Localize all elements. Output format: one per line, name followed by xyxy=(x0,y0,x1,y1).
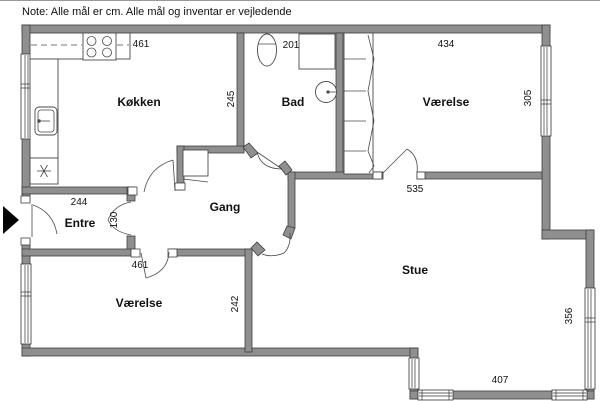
refrigerator-icon xyxy=(30,158,58,184)
shower-icon xyxy=(299,34,335,69)
dim-bedroom2-right: 242 xyxy=(230,295,241,312)
dim-kitchen-right: 245 xyxy=(226,90,237,107)
window-bedroom2 xyxy=(21,264,31,344)
room-label-living: Stue xyxy=(402,263,428,277)
dim-bath-top: 201 xyxy=(283,40,300,51)
door-jamb xyxy=(128,187,137,195)
room-label-entry: Entre xyxy=(65,216,96,230)
door-jamb xyxy=(131,249,140,257)
door-jamb xyxy=(21,196,30,203)
window-living-right xyxy=(585,288,595,389)
dim-bedroom2-top: 461 xyxy=(132,260,149,271)
interior-walls xyxy=(22,33,542,352)
room-labels: Køkken Bad Værelse Gang Entre Stue Værel… xyxy=(65,95,470,310)
room-label-bath: Bad xyxy=(282,95,305,109)
toilet-icon xyxy=(258,34,277,66)
door-jamb xyxy=(21,238,30,245)
outer-walls xyxy=(22,25,594,399)
wall-segment xyxy=(237,33,244,152)
door-jamb xyxy=(417,172,425,179)
wall-segment xyxy=(251,242,265,256)
bath-door xyxy=(257,152,282,169)
door-jamb xyxy=(373,172,382,179)
window-kitchen xyxy=(21,54,31,139)
wardrobe-icon xyxy=(344,33,374,174)
bedroom1-door xyxy=(383,149,417,173)
window-living-step xyxy=(409,358,419,389)
fixtures xyxy=(30,33,374,184)
room-label-bedroom2: Værelse xyxy=(116,296,163,310)
wall-segment xyxy=(288,172,295,228)
window-living-bottom-2 xyxy=(552,390,587,400)
entrance-arrow-icon xyxy=(3,206,19,234)
dim-living-bottom: 407 xyxy=(492,375,509,386)
washbasin-icon xyxy=(316,82,337,103)
wall-segment xyxy=(169,249,252,256)
kitchen-sink-icon xyxy=(35,107,57,135)
wall-segment xyxy=(22,249,131,256)
dim-entry-top: 244 xyxy=(71,197,88,208)
window-bedroom1 xyxy=(541,46,551,136)
wall-segment xyxy=(22,187,134,194)
dim-living-top: 535 xyxy=(407,184,424,195)
wall-segment xyxy=(417,172,542,179)
door-jamb xyxy=(175,183,185,190)
dim-bedroom1-top: 434 xyxy=(438,39,455,50)
wall-segment xyxy=(283,226,295,239)
floor-plan-drawing: Note: Alle mål er cm. Alle mål og invent… xyxy=(0,1,600,401)
dim-kitchen-top: 461 xyxy=(133,39,150,50)
wall-segment xyxy=(22,25,550,33)
room-label-kitchen: Køkken xyxy=(117,95,160,109)
dim-bedroom1-right: 305 xyxy=(523,89,534,106)
wall-segment xyxy=(243,143,258,158)
dim-entry-opening: 130 xyxy=(109,211,120,228)
wall-segment xyxy=(245,249,252,352)
room-label-hall: Gang xyxy=(210,200,241,214)
plan-note: Note: Alle mål er cm. Alle mål og invent… xyxy=(22,6,292,18)
stove-icon xyxy=(83,33,116,60)
wall-segment xyxy=(336,33,343,174)
floor-plan: Note: Alle mål er cm. Alle mål og invent… xyxy=(0,0,600,401)
windows xyxy=(21,46,595,400)
hall-cupboard-icon xyxy=(183,150,208,182)
door-jamb xyxy=(168,249,177,257)
window-living-bottom-1 xyxy=(418,390,453,400)
entrance-door xyxy=(32,204,57,237)
wall-segment xyxy=(22,348,418,356)
room-label-bedroom1: Værelse xyxy=(423,95,470,109)
entrance-opening xyxy=(21,202,31,239)
dim-living-right: 356 xyxy=(564,307,575,324)
kitchen-door xyxy=(144,160,175,192)
